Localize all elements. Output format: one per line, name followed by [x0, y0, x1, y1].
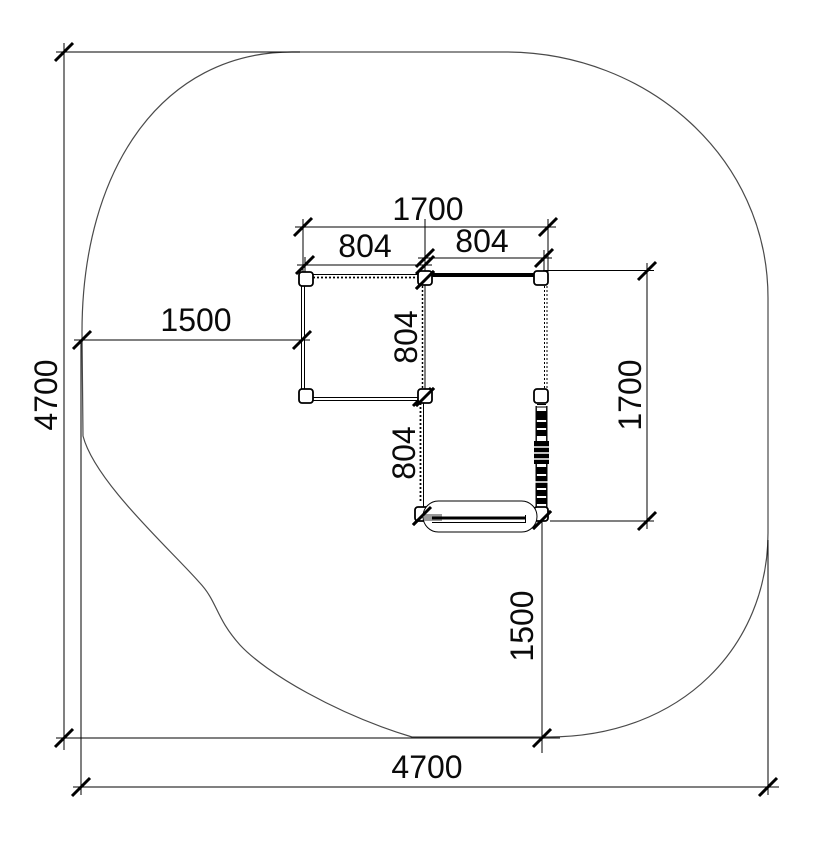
ladder — [534, 405, 549, 508]
dim-label-offset-bottom: 1500 — [504, 590, 540, 661]
post — [534, 271, 548, 285]
dim-offset-left: 1500 — [73, 302, 311, 349]
post — [299, 272, 313, 286]
extension-lines — [56, 52, 768, 795]
structure-ticks — [413, 271, 551, 529]
post — [299, 389, 313, 403]
plan-drawing: 4700 4700 1500 1700 804 804 — [0, 0, 823, 863]
drawing-canvas: 4700 4700 1500 1700 804 804 — [0, 0, 823, 863]
dim-label-offset-left: 1500 — [160, 302, 231, 338]
dim-offset-bottom: 1500 — [504, 511, 551, 753]
bench — [423, 501, 537, 532]
dim-bay-top-right: 804 — [416, 223, 553, 267]
post — [534, 389, 548, 403]
dim-label-overall-width: 4700 — [391, 749, 462, 785]
dim-overall-width: 4700 — [72, 749, 779, 796]
dim-bay-lower-vertical: 804 — [386, 388, 431, 525]
dim-overall-height: 4700 — [28, 43, 73, 750]
dim-bay-mid-vertical: 804 — [388, 219, 434, 406]
dim-bay-top-left: 804 — [296, 228, 434, 274]
dim-label-structure-height: 1700 — [612, 359, 648, 430]
dim-label-bay-mid: 804 — [388, 310, 424, 363]
ladder-rungs — [534, 411, 549, 504]
dim-label-bay-top-left: 804 — [338, 228, 391, 264]
dim-label-overall-height: 4700 — [28, 359, 64, 430]
dim-label-bay-top-right: 804 — [455, 223, 508, 259]
dim-label-structure-width: 1700 — [392, 191, 463, 227]
dim-structure-height: 1700 — [612, 262, 656, 530]
dim-label-bay-lower: 804 — [386, 426, 422, 479]
